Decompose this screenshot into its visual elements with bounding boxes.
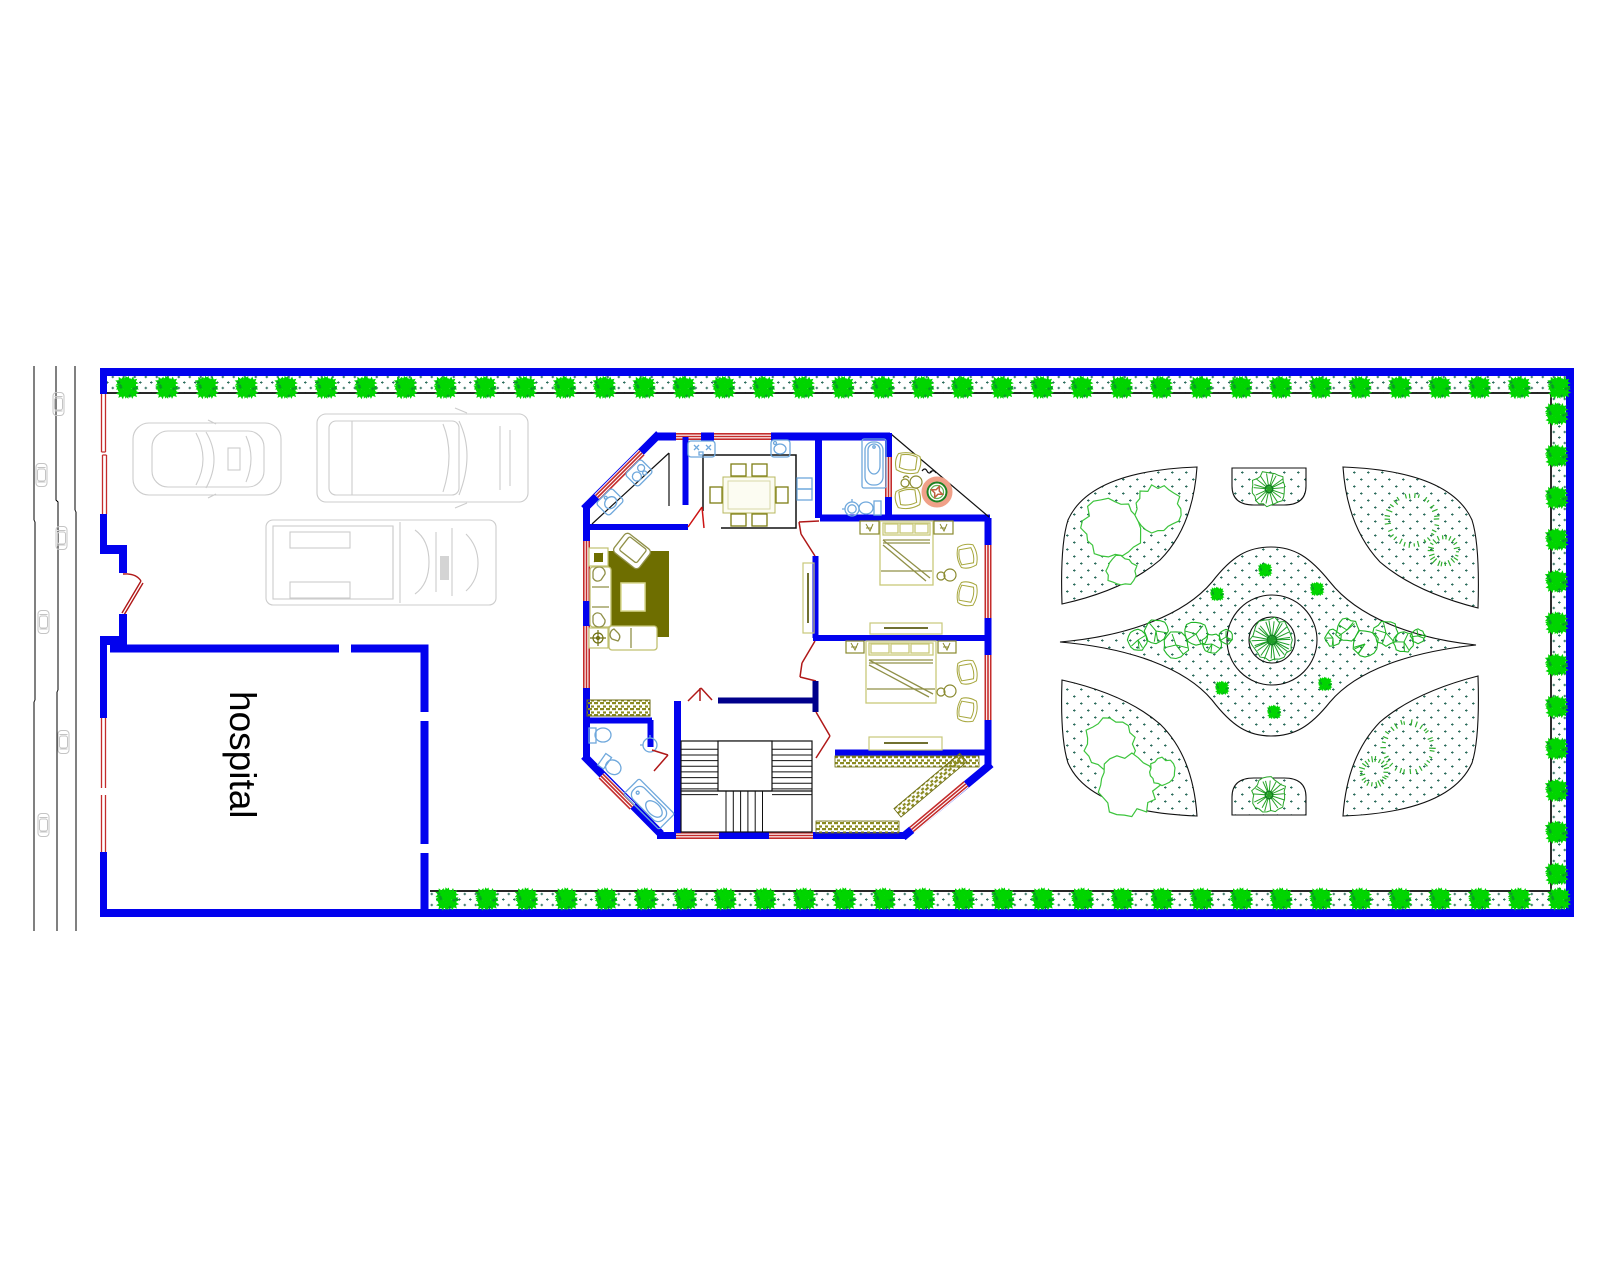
svg-text:hospital: hospital	[222, 691, 263, 819]
